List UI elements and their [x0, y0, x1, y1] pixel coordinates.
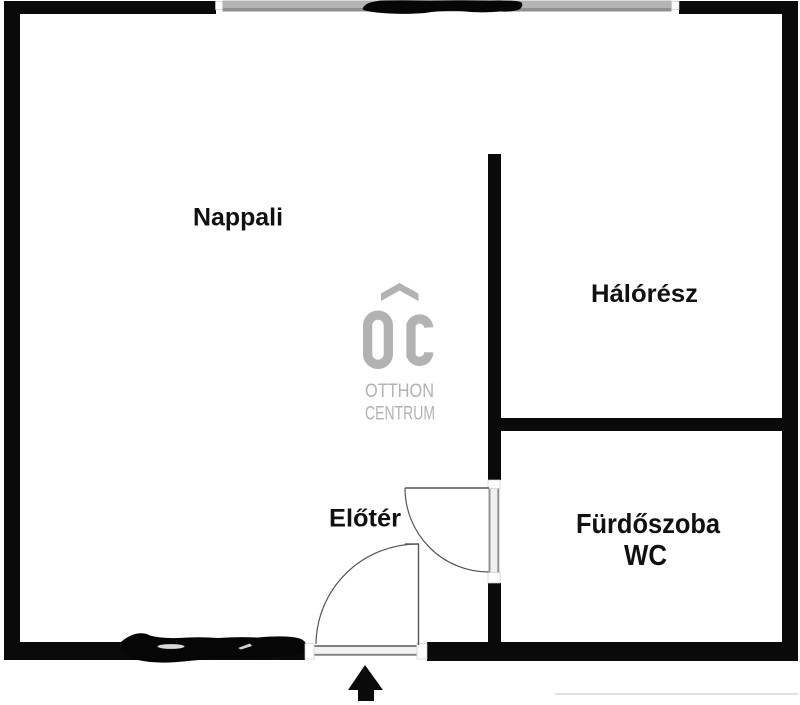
- svg-text:Hálórész: Hálórész: [591, 280, 698, 308]
- svg-text:CENTRUM: CENTRUM: [365, 403, 435, 425]
- svg-text:Fürdőszoba: Fürdőszoba: [576, 508, 720, 539]
- svg-text:Előtér: Előtér: [329, 505, 401, 533]
- svg-text:OTTHON: OTTHON: [365, 380, 434, 402]
- svg-text:WC: WC: [624, 540, 667, 572]
- svg-text:Nappali: Nappali: [193, 204, 283, 232]
